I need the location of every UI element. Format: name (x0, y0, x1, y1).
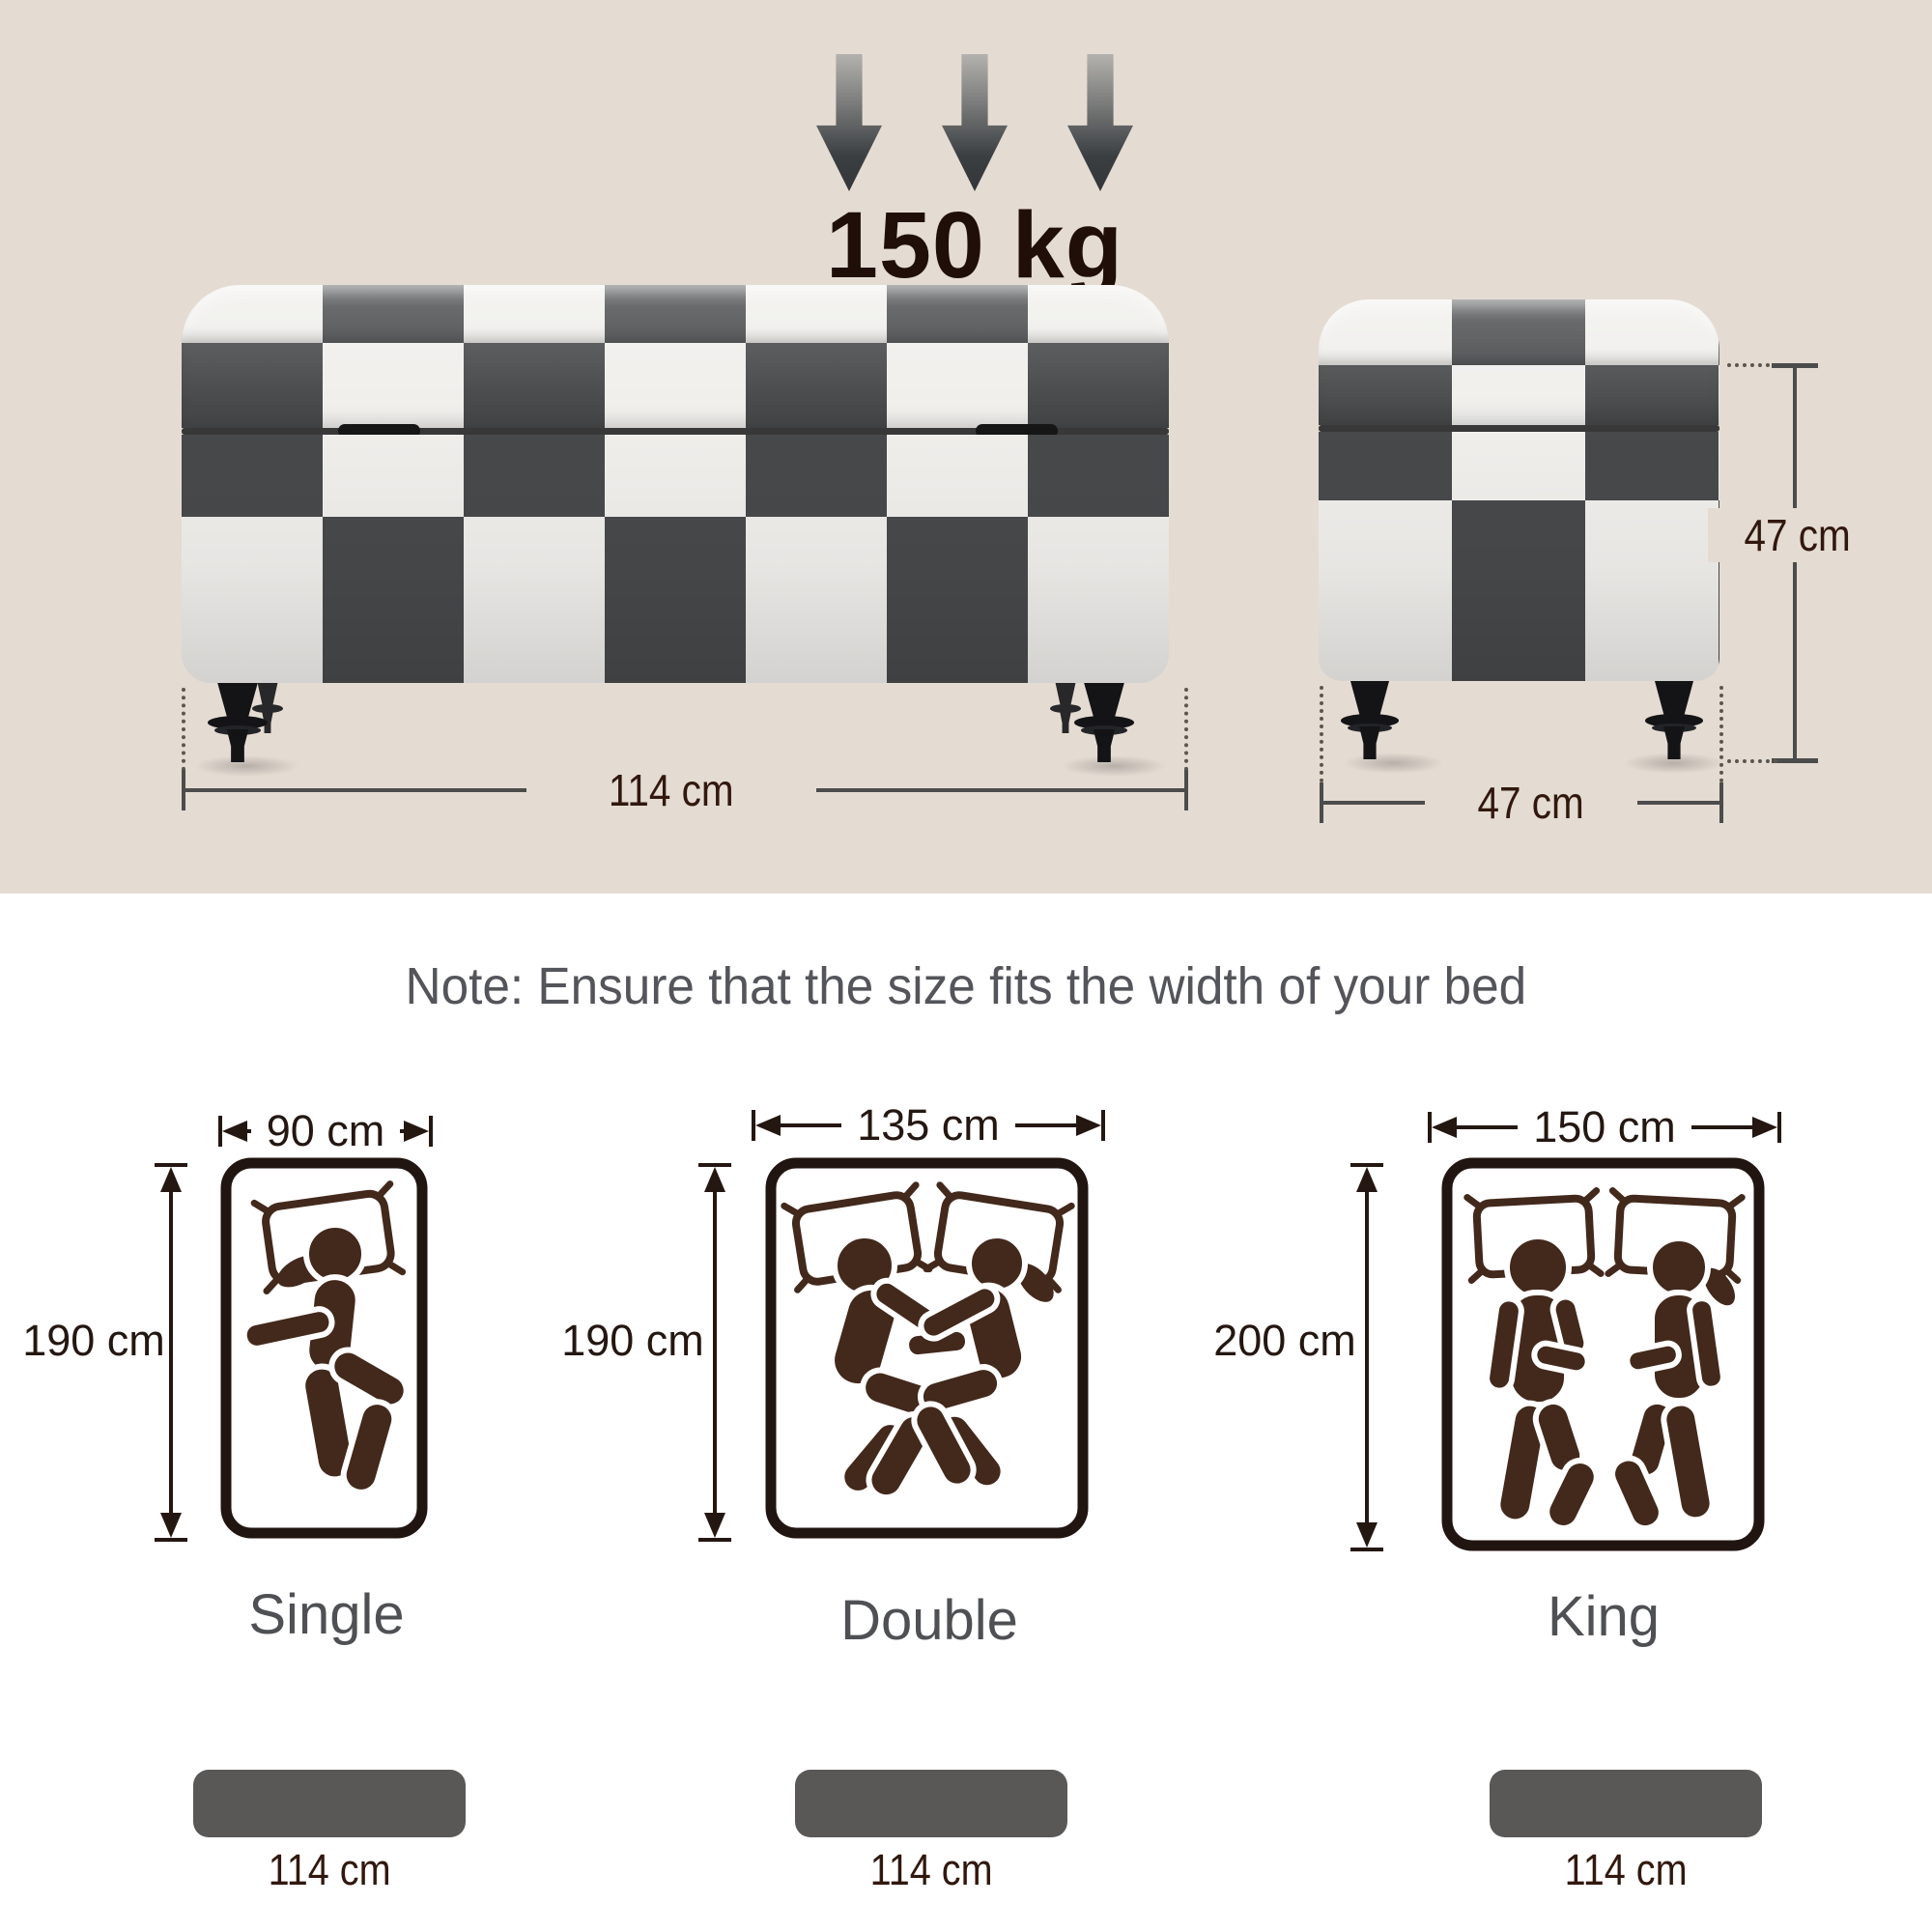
down-arrow-icon (942, 54, 1008, 191)
ottoman-leg (1346, 681, 1394, 759)
bed-width-dimension: 150 cm (1428, 1102, 1781, 1152)
dimensions-panel: 150 kg 114 cm (0, 0, 1932, 894)
weight-arrows (816, 54, 1133, 191)
product-infographic: 150 kg 114 cm (0, 0, 1932, 1932)
bench-width-label: 114 cm (1481, 1845, 1771, 1895)
bed-width-dimension: 135 cm (752, 1100, 1105, 1151)
arrow-left-icon (755, 1115, 781, 1136)
arrow-down-icon (1356, 1522, 1378, 1548)
down-arrow-icon (1067, 54, 1133, 191)
arrow-up-icon (160, 1167, 182, 1192)
dimension-line (1793, 365, 1797, 762)
dotted-leader (1727, 363, 1777, 367)
ottoman-leg (1650, 681, 1698, 759)
bed-width-label: 150 cm (1518, 1102, 1691, 1152)
bed-name: Single (182, 1582, 471, 1647)
down-arrow-icon (816, 54, 882, 191)
dotted-leader (1719, 686, 1723, 782)
bed-top-view (220, 1157, 428, 1539)
ottoman-lid-front (182, 343, 1169, 428)
bed-name: King (1459, 1584, 1748, 1649)
ottoman-body-row (1319, 500, 1719, 681)
bench-bar (193, 1770, 466, 1837)
bed-top-view (1441, 1157, 1765, 1551)
front-width-label: 114 cm (526, 763, 816, 817)
arrow-left-icon (1432, 1117, 1457, 1138)
bed-top-view (765, 1157, 1089, 1539)
arrow-down-icon (704, 1513, 725, 1538)
ottoman-lid-seam (1319, 425, 1719, 432)
bench-width-label: 114 cm (185, 1845, 474, 1895)
ottoman-leg (213, 683, 263, 762)
bed-width-label: 135 cm (841, 1100, 1015, 1151)
arrow-left-icon (222, 1121, 247, 1142)
bed-length-label: 200 cm (1193, 1316, 1377, 1366)
arrow-right-icon (404, 1121, 429, 1142)
side-height-label: 47 cm (1708, 508, 1887, 562)
bed-length-label: 190 cm (541, 1316, 724, 1366)
ottoman-top-surface (1319, 299, 1719, 365)
bench-width-label: 114 cm (786, 1845, 1076, 1895)
dimension-tick (1772, 758, 1818, 763)
arrow-up-icon (704, 1167, 725, 1192)
arrow-right-icon (1076, 1115, 1101, 1136)
ottoman-body-row (182, 517, 1169, 683)
note-text: Note: Ensure that the size fits the widt… (0, 956, 1932, 1016)
ottoman-lid-seam (182, 428, 1169, 435)
bed-length-label: 190 cm (2, 1316, 185, 1366)
bed-name: Double (784, 1588, 1074, 1653)
bed-width-dimension: 90 cm (218, 1106, 433, 1156)
ottoman-body-row (1319, 432, 1719, 500)
dotted-leader (182, 688, 185, 771)
dotted-leader (1184, 688, 1188, 771)
arrow-up-icon (1356, 1167, 1378, 1192)
arrow-right-icon (1752, 1117, 1777, 1138)
bed-width-label: 90 cm (251, 1106, 401, 1156)
ottoman-body-row (182, 435, 1169, 517)
weight-capacity-label: 150 kg (492, 191, 1458, 299)
ottoman-lid-front (1319, 365, 1719, 425)
bench-bar (795, 1770, 1067, 1837)
bench-bar (1490, 1770, 1762, 1837)
ottoman-top-surface (182, 285, 1169, 343)
dotted-leader (1727, 759, 1777, 763)
side-depth-label: 47 cm (1425, 776, 1637, 830)
dotted-leader (1320, 686, 1323, 782)
ottoman-leg (1079, 683, 1129, 762)
arrow-down-icon (160, 1513, 182, 1538)
ottoman-back-leg (1053, 683, 1078, 733)
